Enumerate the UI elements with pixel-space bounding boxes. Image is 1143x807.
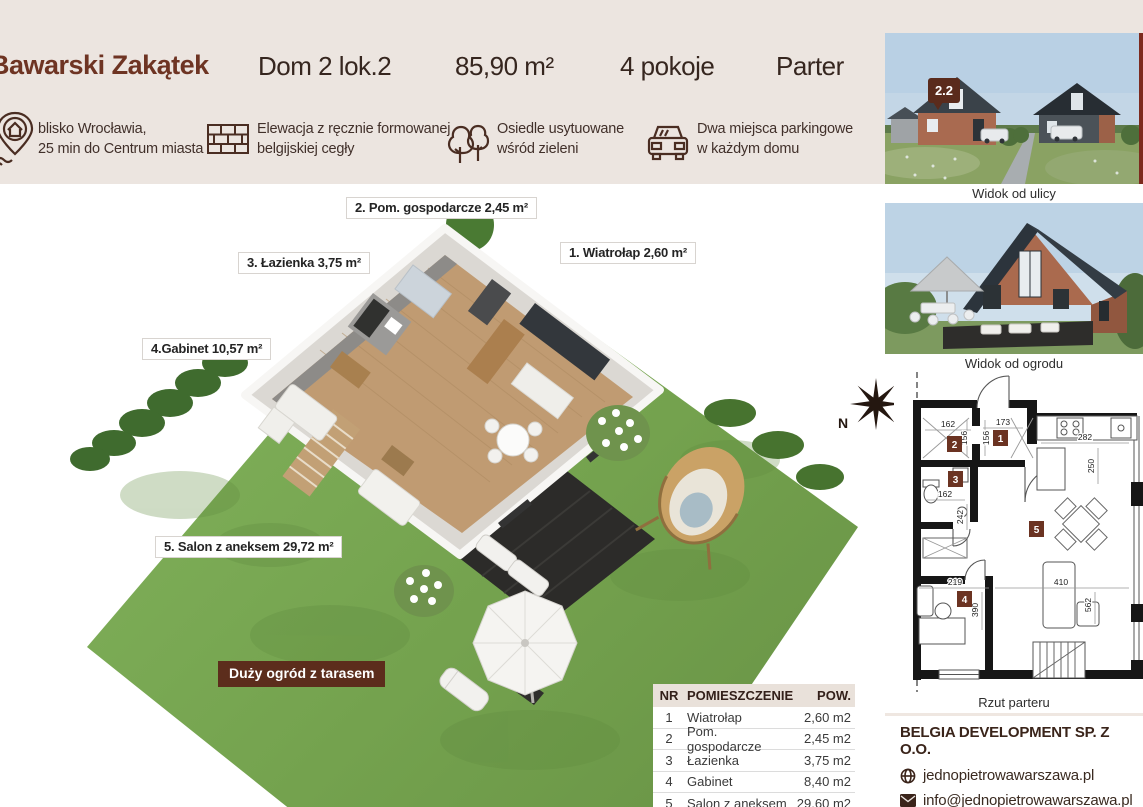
room-label-gabinet: 4.Gabinet 10,57 m² [142,338,271,360]
project-title: Bawarski Zakątek [0,50,209,81]
room-label-gospodarcze: 2. Pom. gospodarcze 2,45 m² [346,197,537,219]
room-label-lazienka: 3. Łazienka 3,75 m² [238,252,370,274]
company-block: BELGIA DEVELOPMENT SP. Z O.O. jednopietr… [885,713,1143,807]
garden-photo-caption: Widok od ogrodu [885,356,1143,371]
unit-badge: 2.2 [928,78,960,103]
room-label-salon: 5. Salon z aneksem 29,72 m² [155,536,342,558]
feature-greenery: Osiedle usytuowane wśród zieleni [497,119,624,159]
table-row: 3Łazienka3,75 m2 [653,750,855,772]
svg-text:162: 162 [941,419,955,429]
globe-icon [900,768,916,784]
feature-location: blisko Wrocławia, 25 min do Centrum mias… [38,119,203,159]
floor-plan-2d: 162 173 156 156 282 250 162 242 219 390 … [905,372,1143,692]
brick-wall-icon [207,124,249,160]
feature-parking: Dwa miejsca parkingowe w każdym domu [697,119,853,159]
svg-text:156: 156 [981,431,991,445]
floor-plan-caption: Rzut parteru [885,695,1143,710]
brochure-page: Bawarski Zakątek Dom 2 lok.2 85,90 m² 4 … [0,0,1143,807]
email-link[interactable]: info@jednopietrowawarszawa.pl [900,788,1143,807]
garden-terrace-label: Duży ogród z tarasem [218,661,385,687]
table-header: NR POMIESZCZENIE POW. [653,684,855,707]
svg-text:250: 250 [1086,459,1096,473]
svg-text:562: 562 [1083,598,1093,612]
svg-text:2: 2 [952,440,958,451]
svg-text:242: 242 [955,510,965,524]
trees-icon [445,117,491,170]
compass-north-label: N [838,415,848,431]
street-photo-caption: Widok od ulicy [885,186,1143,201]
rooms-table: NR POMIESZCZENIE POW. 1Wiatrołap2,60 m2 … [653,684,855,807]
area-label: 85,90 m² [455,51,554,82]
envelope-icon [900,794,916,807]
location-pin-icon [0,110,36,171]
car-icon [646,121,690,166]
svg-text:162: 162 [938,489,952,499]
garden-photo [885,203,1143,354]
svg-text:173: 173 [996,417,1010,427]
room-label-wiatrolap: 1. Wiatrołap 2,60 m² [560,242,696,264]
compass: N [836,376,894,441]
rooms-label: 4 pokoje [620,51,714,82]
svg-text:219: 219 [948,577,962,587]
street-photo: 2.2 [885,33,1143,184]
svg-text:410: 410 [1054,577,1068,587]
feature-elevation: Elewacja z ręcznie formowanej belgijskie… [257,119,450,159]
table-row: 4Gabinet8,40 m2 [653,772,855,794]
svg-text:1: 1 [998,434,1004,445]
unit-label: Dom 2 lok.2 [258,51,391,82]
svg-text:3: 3 [953,475,959,486]
floor-label: Parter [776,51,844,82]
hedge [70,349,248,471]
table-row: 5Salon z aneksem29,60 m2 [653,793,855,807]
website-link[interactable]: jednopietrowawarszawa.pl [900,763,1143,788]
svg-text:4: 4 [962,595,968,606]
svg-text:282: 282 [1078,432,1092,442]
company-name: BELGIA DEVELOPMENT SP. Z O.O. [900,724,1143,758]
svg-text:5: 5 [1034,525,1040,536]
table-row: 2Pom. gospodarcze2,45 m2 [653,729,855,751]
